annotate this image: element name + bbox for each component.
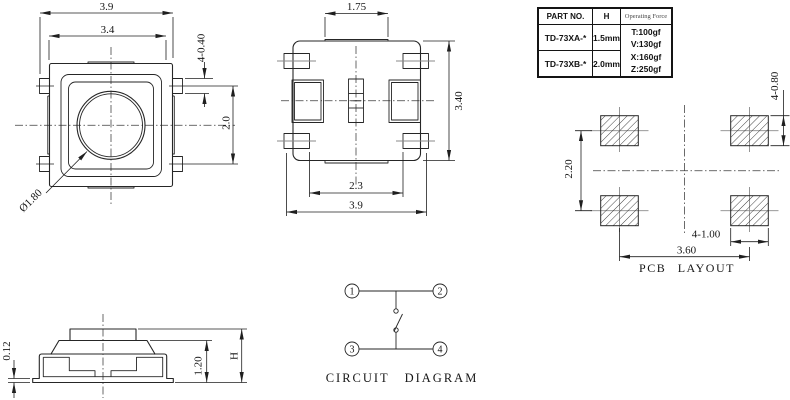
spec-table: PART NO. H Operating Force TD-73XA-* 1.5… [537,7,673,78]
dim-bottom-top-width: 1.75 [347,1,367,13]
dim-terminal-height: 4-0.40 [196,33,208,62]
dim-bottom-height: 3.40 [453,91,465,111]
dim-top-outer-width: 3.9 [100,1,114,13]
dim-pcb-pad-width: 4-1.00 [692,229,721,241]
part-no-cell-row1: TD-73XA-* [539,25,593,51]
dim-bottom-outer-width: 3.9 [349,200,363,212]
bottom-view: 1.75 3.40 2.3 3.9 [277,1,465,216]
dim-foot-height: 0.12 [1,341,13,360]
dim-total-height: H [229,352,241,360]
force-value-x: X:160gf [631,52,662,62]
dim-body-height: 1.20 [193,356,205,376]
contact-plate-left-inner [295,83,322,121]
circuit-diagram-title: CIRCUIT DIAGRAM [326,371,479,385]
terminal-3-label: 3 [350,345,355,356]
contact-plate-left [292,80,324,123]
dim-pcb-row-pitch: 2.20 [563,159,575,179]
circuit-diagram: 1 2 3 4 CIRCUIT DIAGRAM [326,284,479,385]
force-value-v: V:130gf [631,39,661,49]
pcb-layout: 2.20 4-0.80 4-1.00 3.60 PCB LAYOUT [563,71,790,275]
top-view: 3.9 3.4 4-0.40 2.0 Ø1.80 [15,1,238,215]
side-view: 0.12 1.20 H [1,314,247,398]
terminal-1-label: 1 [350,287,355,298]
dim-button-diameter: Ø1.80 [17,187,45,215]
solder-pad-bottom-left [601,196,639,226]
contact-plate-right [389,80,421,123]
operating-force-cell: T:100gf V:130gf X:160gf Z:250gf [621,25,671,76]
bottom-body-tabs [325,40,388,164]
solder-pad-top-left [601,116,639,146]
col-header-operating-force: Operating Force [621,9,671,25]
solder-pad-bottom-right [731,196,769,226]
contact-plate-right-inner [392,83,419,121]
col-header-h: H [593,9,621,25]
terminal-2-label: 2 [438,287,443,298]
force-value-z: Z:250gf [631,64,661,74]
part-no-cell-row2: TD-73XB-* [539,51,593,76]
pcb-layout-title: PCB LAYOUT [639,261,735,275]
dim-terminal-pitch: 2.0 [221,116,233,130]
terminal-4-label: 4 [438,345,443,356]
dim-bottom-inner-width: 2.3 [349,180,363,192]
solder-pad-top-right [731,116,769,146]
drawing-sheet: 3.9 3.4 4-0.40 2.0 Ø1.80 [0,0,790,400]
dim-pcb-pad-height: 4-0.80 [769,71,781,100]
switch-contact-upper [394,309,398,313]
col-header-part-no: PART NO. [539,9,593,25]
dim-top-inner-width: 3.4 [101,24,115,36]
force-value-t: T:100gf [631,27,660,37]
h-cell-row2: 2.0mm [593,51,621,76]
h-cell-row1: 1.5mm [593,25,621,51]
dim-pcb-col-pitch: 3.60 [677,245,697,257]
